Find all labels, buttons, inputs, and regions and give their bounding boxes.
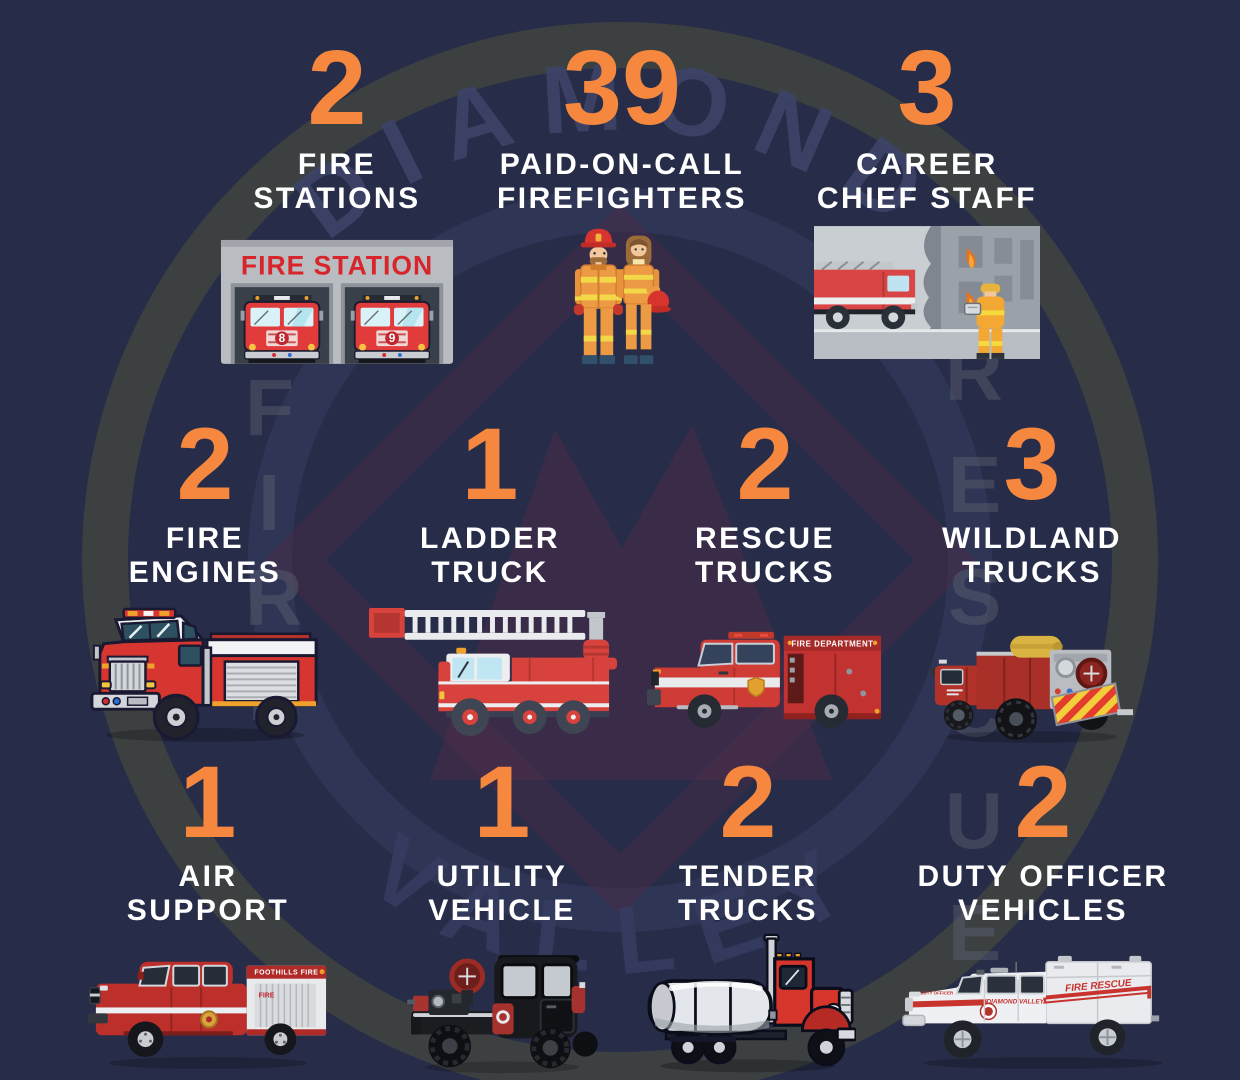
stat-duty-officer-vehicles: 2 DUTY OFFICER VEHICLES FIRE RESCUE DIAM… [883,756,1203,1073]
fire-scene-illustration [814,226,1040,359]
stat-value: 3 [1004,418,1061,512]
stat-label: RESCUE TRUCKS [695,522,835,590]
duty-officer-fender-text: DUTY OFFICER [920,991,954,996]
stat-tender-trucks: 2 TENDER TRUCKS [608,756,888,1075]
stat-label: FIRE STATIONS [253,148,420,216]
stat-value: 3 [898,40,957,138]
duty-officer-vehicle-illustration: FIRE RESCUE DIAMOND VALLEY DUTY OFFICER [899,932,1187,1073]
stat-rescue-trucks: 2 RESCUE TRUCKS FIRE DEPARTMENT [625,418,905,737]
stat-label: CAREER CHIEF STAFF [817,148,1037,216]
stat-label: DUTY OFFICER VEHICLES [917,860,1168,928]
stat-label: TENDER TRUCKS [678,860,818,928]
fire-station-bay: 9 [341,283,443,364]
wildland-truck-illustration [925,610,1139,745]
ladder-truck-illustration [363,604,617,741]
stat-label: UTILITY VEHICLE [428,860,576,928]
stat-fire-engines: 2 FIRE ENGINES [65,418,345,745]
stat-paid-on-call-firefighters: 39 PAID-ON-CALL FIREFIGHTERS [442,40,802,367]
fire-station-illustration: FIRE STATION [219,226,455,366]
stat-label: WILDLAND TRUCKS [942,522,1122,590]
firefighter-man [574,229,623,364]
stat-wildland-trucks: 3 WILDLAND TRUCKS [892,418,1172,745]
stat-value: 2 [720,756,777,850]
stat-value: 2 [308,40,367,138]
air-support-front-text: FIRE [259,993,275,1000]
stat-value: 2 [1015,756,1072,850]
bay-number: 9 [389,331,396,345]
firefighter-woman [618,236,671,364]
air-support-truck-illustration: FOOTHILLS FIRE FIRE [84,928,332,1073]
utility-vehicle-illustration [404,928,600,1075]
rescue-box-text: FIRE DEPARTMENT [791,640,873,649]
rescue-truck-illustration: FIRE DEPARTMENT [641,616,889,737]
tender-truck-illustration [640,922,856,1075]
fire-station-bay: 8 [231,283,333,364]
stat-label: LADDER TRUCK [420,522,560,590]
stat-career-chief-staff: 3 CAREER CHIEF STAFF [777,40,1077,359]
infographic-canvas: DIAMOND VALLEY F I R E R E S C U E 2 FIR… [0,0,1240,1080]
duty-officer-side-text: DIAMOND VALLEY [986,999,1044,1006]
bay-number: 8 [279,331,286,345]
stat-value: 1 [474,756,531,850]
stat-ladder-truck: 1 LADDER TRUCK [350,418,630,741]
fire-engine-illustration [80,594,330,745]
stat-value: 2 [737,418,794,512]
firefighters-illustration [563,218,681,367]
fire-station-sign: FIRE STATION [241,250,433,280]
air-support-box-text: FOOTHILLS FIRE [254,970,318,977]
stat-value: 2 [177,418,234,512]
stat-value: 39 [563,40,681,138]
stat-value: 1 [180,756,237,850]
stat-label: AIR SUPPORT [127,860,290,928]
stat-label: FIRE ENGINES [129,522,282,590]
stat-value: 1 [462,418,519,512]
stat-utility-vehicle: 1 UTILITY VEHICLE [362,756,642,1075]
stat-air-support: 1 AIR SUPPORT FOOTHILLS FIRE [68,756,348,1073]
stat-label: PAID-ON-CALL FIREFIGHTERS [497,148,747,216]
